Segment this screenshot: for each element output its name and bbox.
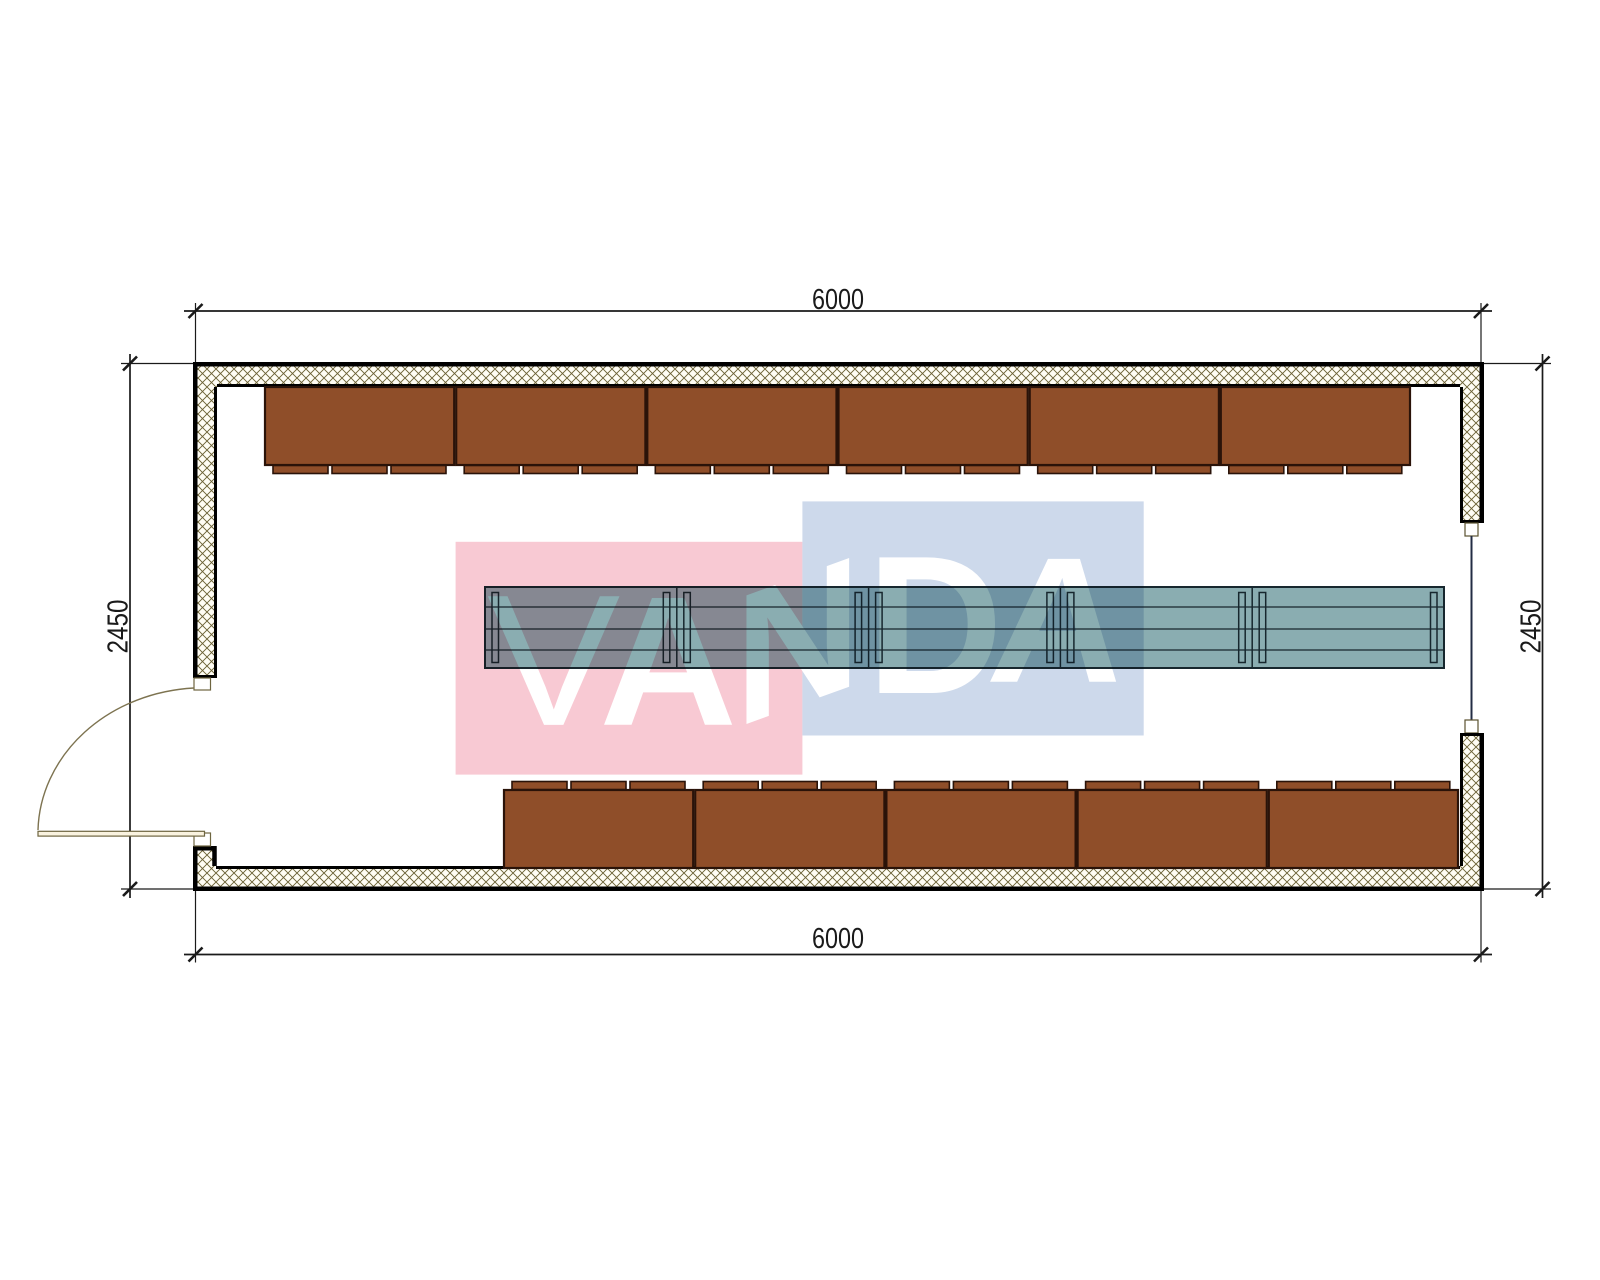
svg-text:6000: 6000 — [812, 923, 864, 955]
svg-text:6000: 6000 — [812, 284, 864, 316]
svg-text:2450: 2450 — [103, 600, 135, 654]
svg-text:D: D — [867, 514, 1003, 735]
svg-text:A: A — [982, 520, 1135, 719]
svg-text:2450: 2450 — [1516, 600, 1548, 654]
svg-text:A: A — [599, 558, 737, 764]
